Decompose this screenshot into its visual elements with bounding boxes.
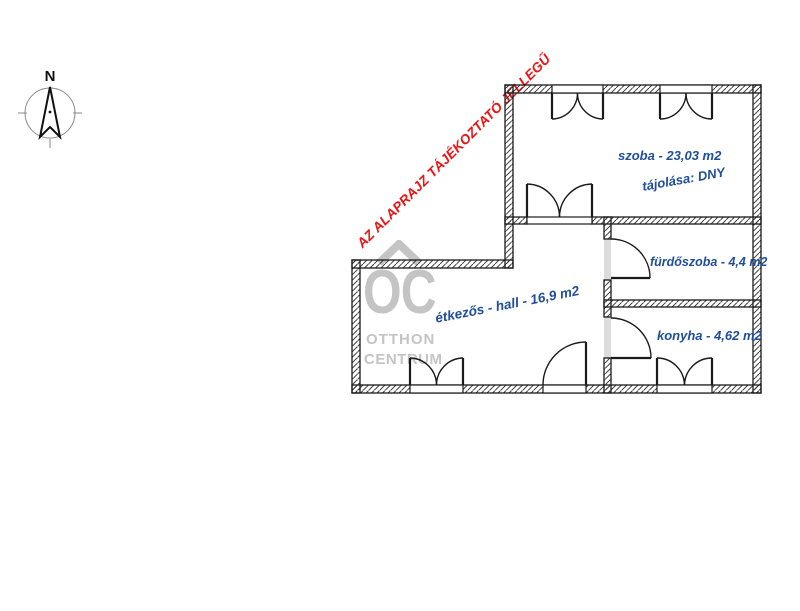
room-label-furdoszoba: fürdőszoba - 4,4 m2	[650, 255, 767, 269]
walls	[352, 85, 761, 393]
room-label-konyha: konyha - 4,62 m2	[657, 328, 762, 343]
room-label-szoba: szoba - 23,03 m2	[618, 148, 721, 163]
floorplan-drawing	[0, 0, 800, 611]
floorplan-page: N AZ ALAPRAJZ TÁJÉKOZTATÓ JELLEGŰ OC OTT…	[0, 0, 800, 611]
wall-openings	[410, 85, 712, 393]
